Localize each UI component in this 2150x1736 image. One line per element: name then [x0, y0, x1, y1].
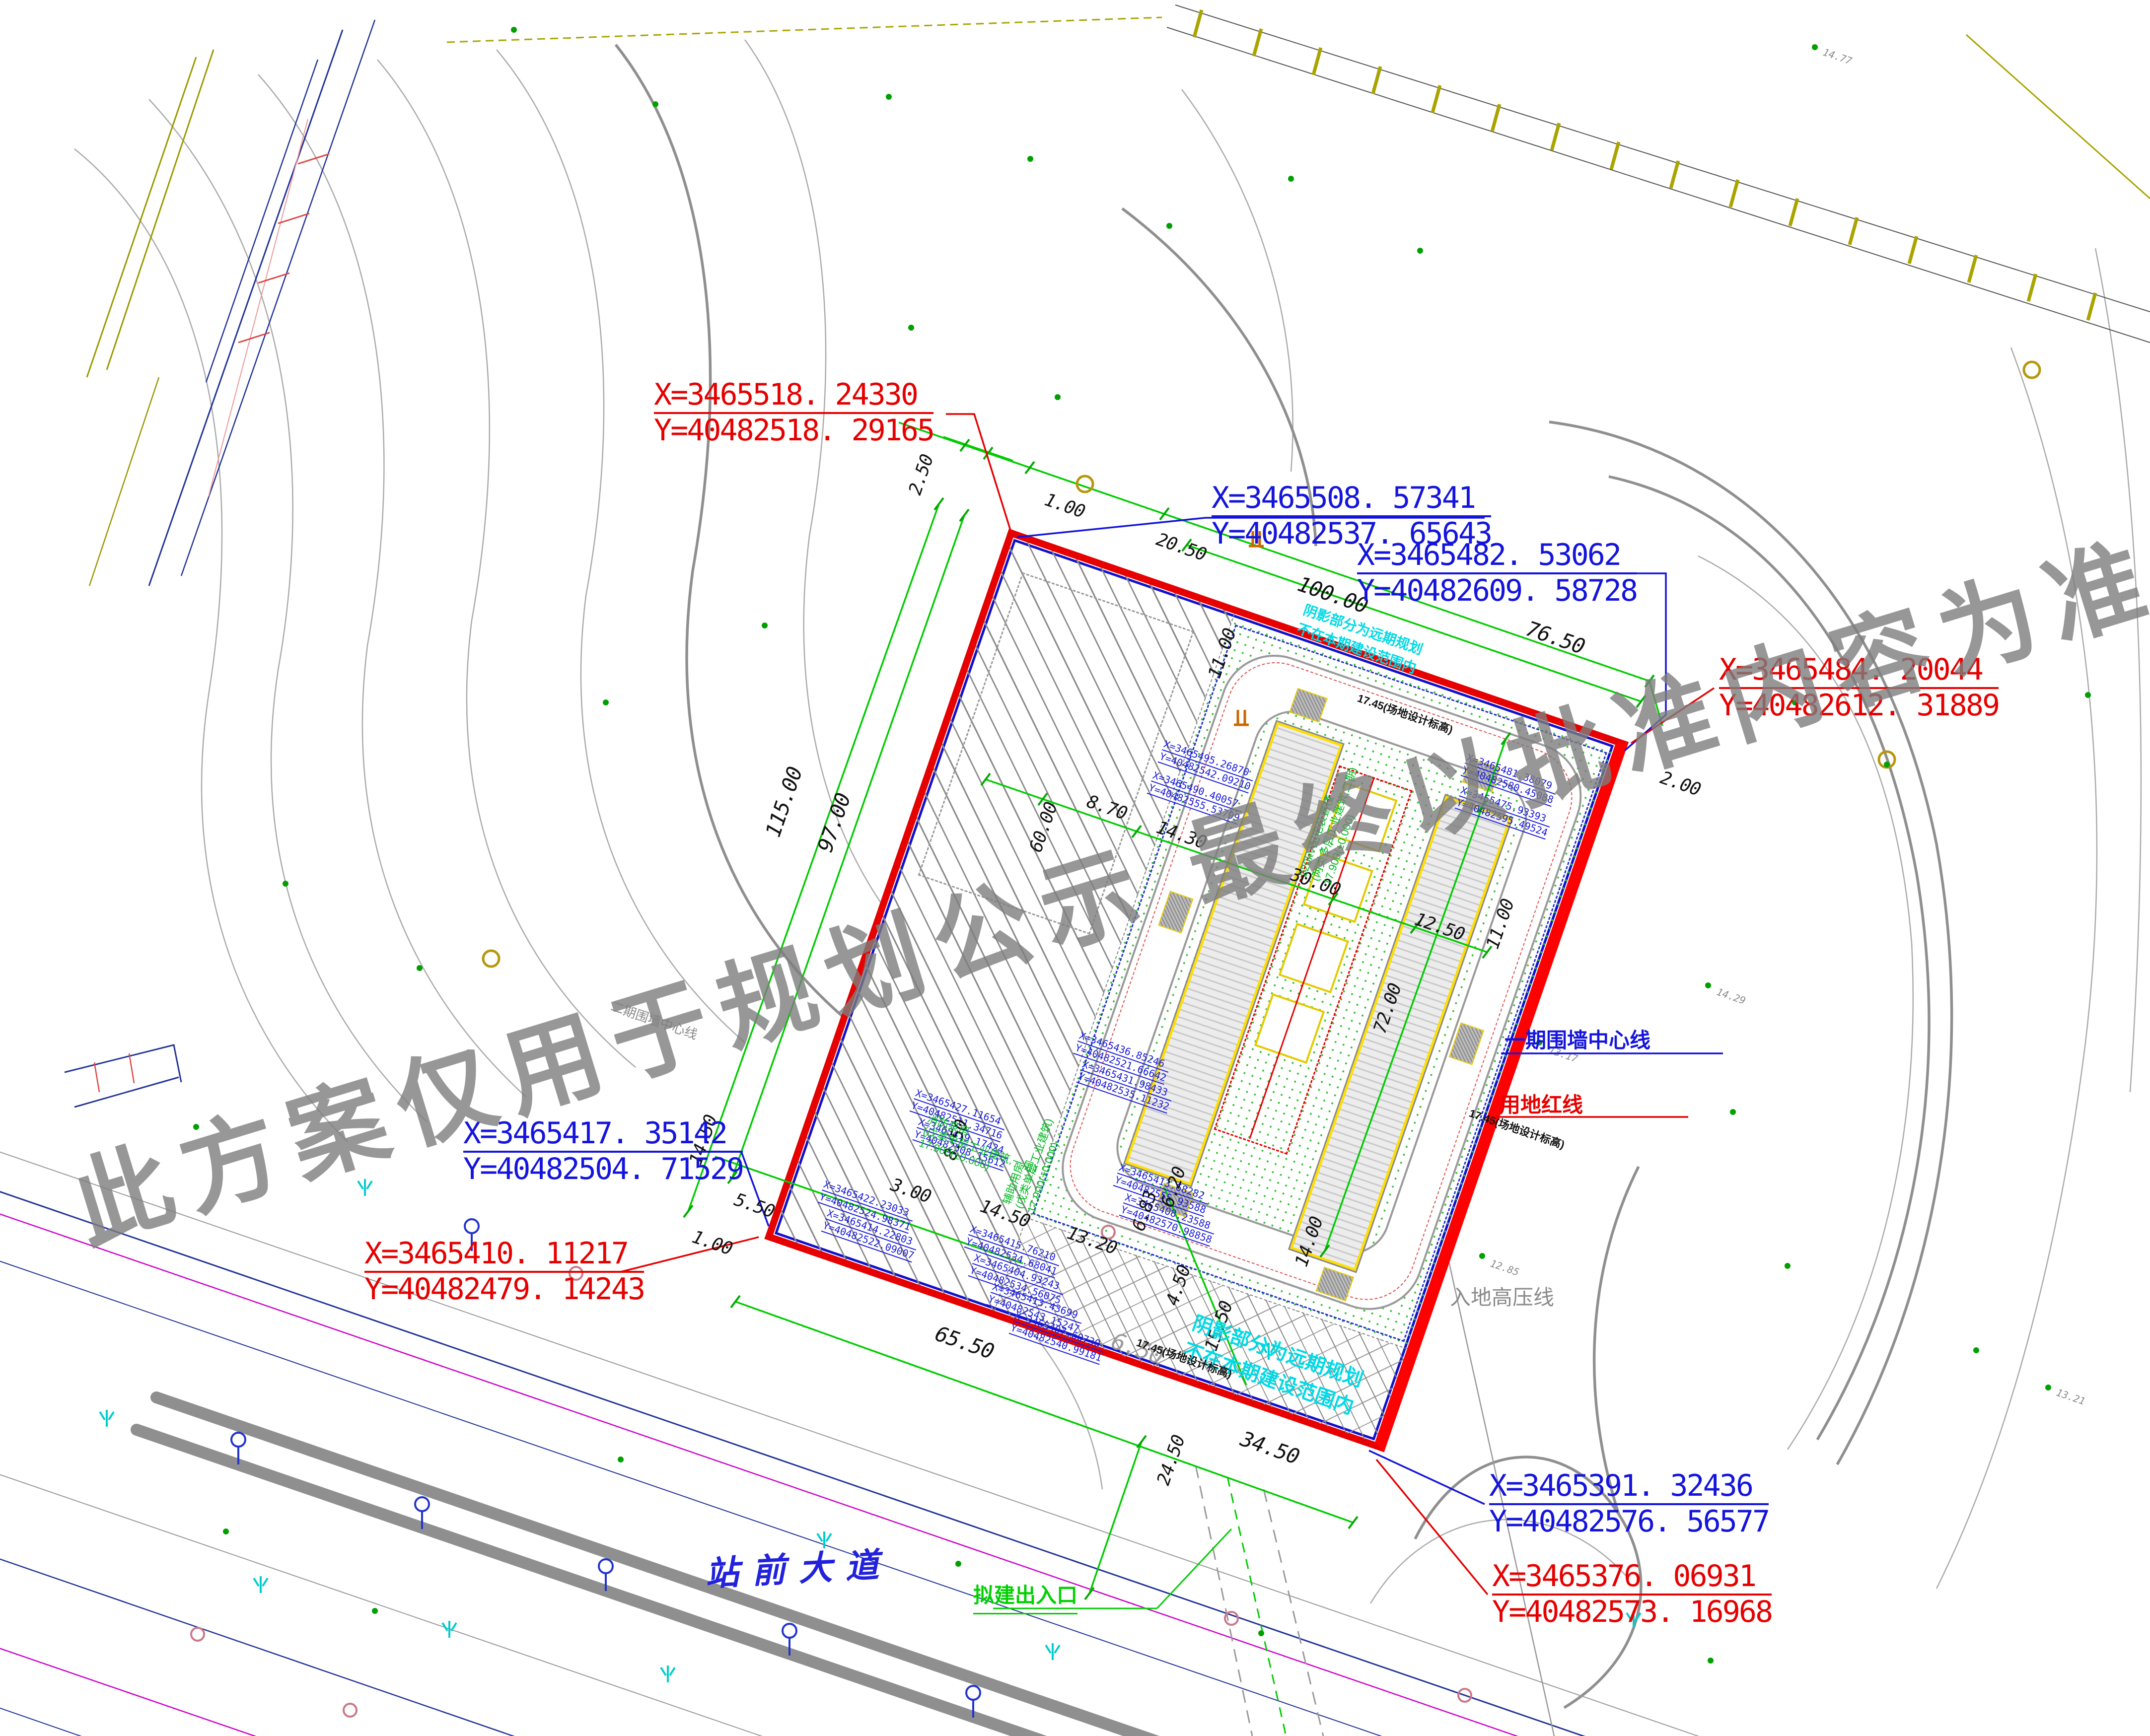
coord-callout: X=3465391. 32436Y=40482576. 56577: [1489, 1469, 1769, 1538]
coord-callout: X=3465518. 24330Y=40482518. 29165: [654, 378, 933, 447]
coord-callout: X=3465410. 11217Y=40482479. 14243: [364, 1237, 644, 1306]
grass-icon: [100, 1179, 1641, 1682]
coord-callout: X=3465482. 53062Y=40482609. 58728: [1357, 539, 1637, 607]
entrance-label: 拟建出入口: [973, 1579, 1077, 1614]
phase1-wall-label: 一期围墙中心线: [1505, 1024, 1650, 1054]
coord-callout: X=3465376. 06931Y=40482573. 16968: [1492, 1560, 1772, 1628]
main-road-label: 站前大道: [704, 1536, 893, 1596]
red-line-label: 用地红线: [1500, 1088, 1583, 1118]
hv-line-label: 入地高压线: [1450, 1281, 1554, 1311]
site-plan-canvas: { "watermark": { "text": "此方案仅用于规划公示 最终以…: [0, 0, 2150, 1736]
